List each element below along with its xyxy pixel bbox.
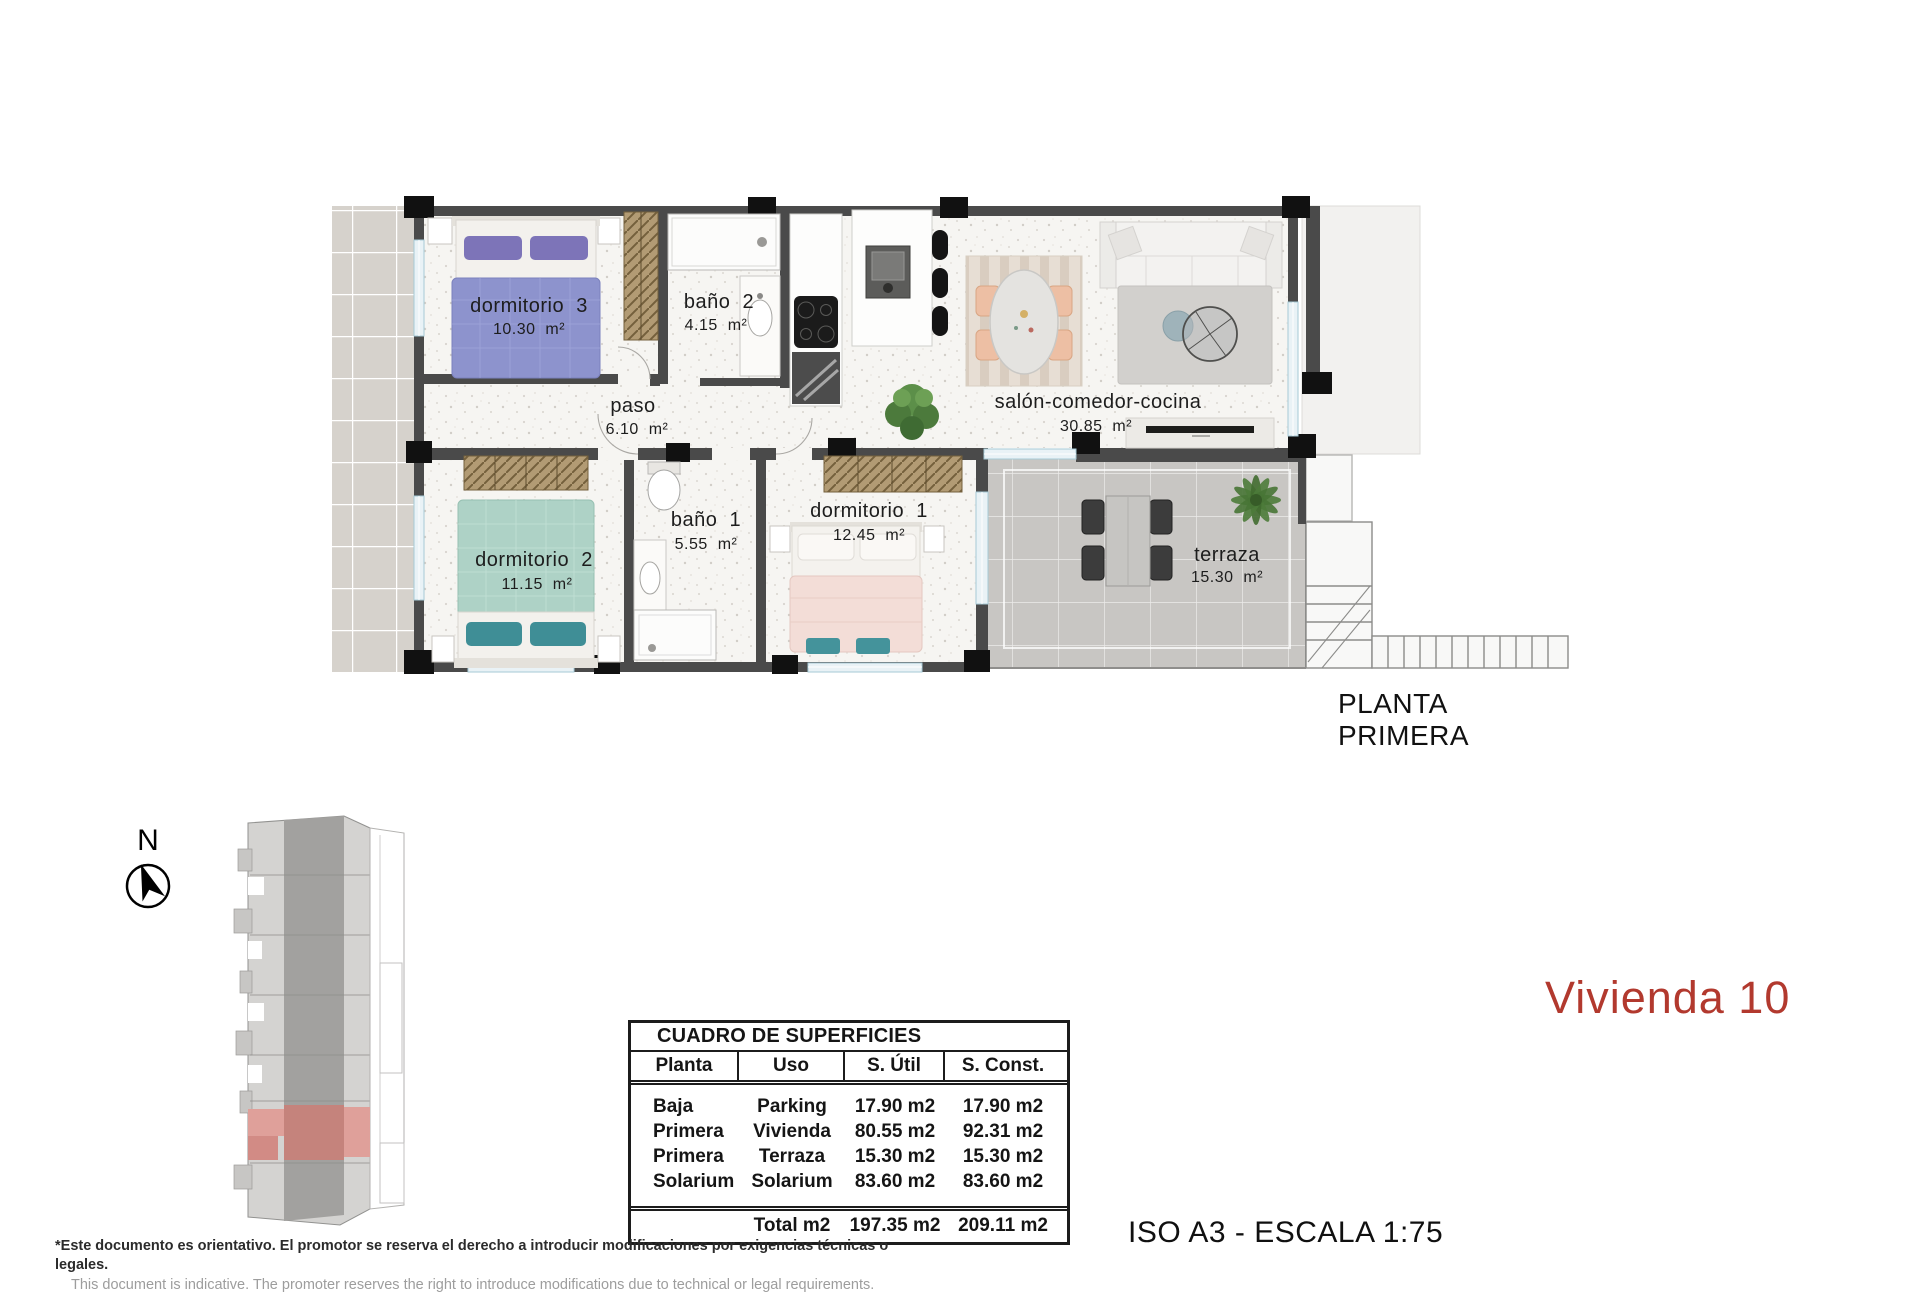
north-arrow: N <box>108 820 198 920</box>
cell: Solarium <box>739 1169 845 1194</box>
room-area-bano-1: 5.55 m² <box>675 536 738 553</box>
room-label-terraza: terraza <box>1194 544 1260 566</box>
room-area-dormitorio-3: 10.30 m² <box>493 321 565 338</box>
disclaimer-en: This document is indicative. The promote… <box>71 1276 915 1295</box>
room-label-salon: salón-comedor-cocina <box>995 391 1202 413</box>
total-label: Total m2 <box>739 1215 845 1237</box>
col-header-uso: Uso <box>739 1052 845 1080</box>
col-header-sutil: S. Útil <box>845 1052 945 1080</box>
neighbour-terrace-tiles <box>332 206 418 672</box>
col-header-sconst: S. Const. <box>945 1052 1061 1080</box>
cell: Primera <box>631 1119 739 1144</box>
room-area-bano-2: 4.15 m² <box>685 317 748 334</box>
cell: 83.60 m2 <box>945 1169 1061 1194</box>
col-header-planta: Planta <box>631 1052 739 1080</box>
living-rug <box>1118 286 1272 384</box>
site-core <box>284 816 344 1221</box>
room-label-dormitorio-2: dormitorio 2 <box>475 549 593 571</box>
page: { "plan": { "floor_label": "PLANTA PRIME… <box>0 0 1920 1280</box>
cell: Terraza <box>739 1144 845 1169</box>
room-label-paso: paso <box>610 395 655 417</box>
floor-plan-svg: dormitorio 3 10.30 m² baño 2 4.15 m² pas… <box>330 190 1570 678</box>
room-area-terraza: 15.30 m² <box>1191 569 1263 586</box>
room-area-dormitorio-2: 11.15 m² <box>502 576 573 593</box>
table-row: Solarium Solarium 83.60 m2 83.60 m2 <box>631 1169 1067 1194</box>
cell: Parking <box>739 1094 845 1119</box>
cell: 15.30 m2 <box>945 1144 1061 1169</box>
surface-table-header: Planta Uso S. Útil S. Const. <box>631 1052 1067 1085</box>
surface-table-title: CUADRO DE SUPERFICIES <box>631 1023 1067 1052</box>
north-label: N <box>137 824 159 857</box>
cell: 17.90 m2 <box>945 1094 1061 1119</box>
scale-note: ISO A3 - ESCALA 1:75 <box>1128 1216 1443 1250</box>
surface-table-body: Baja Parking 17.90 m2 17.90 m2 Primera V… <box>631 1085 1067 1206</box>
room-label-bano-2: baño 2 <box>684 291 754 313</box>
staircase <box>1306 455 1568 668</box>
unit-title: Vivienda 10 <box>1545 972 1790 1024</box>
cell: 17.90 m2 <box>845 1094 945 1119</box>
neighbour-unit-faded <box>1302 206 1420 454</box>
floor-plan: dormitorio 3 10.30 m² baño 2 4.15 m² pas… <box>330 190 1570 678</box>
disclaimer-es: *Este documento es orientativo. El promo… <box>55 1237 915 1275</box>
sliding-door <box>984 449 1076 459</box>
site-unit-highlight <box>248 1105 370 1160</box>
cell: 15.30 m2 <box>845 1144 945 1169</box>
compass-needle <box>131 860 165 903</box>
cell: 80.55 m2 <box>845 1119 945 1144</box>
room-label-dormitorio-1: dormitorio 1 <box>810 500 928 522</box>
cell: 92.31 m2 <box>945 1119 1061 1144</box>
total-util: 197.35 m2 <box>845 1215 945 1237</box>
disclaimer: *Este documento es orientativo. El promo… <box>55 1237 915 1295</box>
room-label-dormitorio-3: dormitorio 3 <box>470 295 588 317</box>
cell: Primera <box>631 1144 739 1169</box>
table-row: Baja Parking 17.90 m2 17.90 m2 <box>631 1094 1067 1119</box>
cell: Solarium <box>631 1169 739 1194</box>
floor-title: PLANTA PRIMERA <box>1338 688 1574 752</box>
room-label-bano-1: baño 1 <box>671 509 741 531</box>
table-row: Primera Terraza 15.30 m2 15.30 m2 <box>631 1144 1067 1169</box>
room-area-dormitorio-1: 12.45 m² <box>833 527 905 544</box>
surface-table: CUADRO DE SUPERFICIES Planta Uso S. Útil… <box>628 1020 1070 1245</box>
dining-set <box>966 256 1082 386</box>
cell: Baja <box>631 1094 739 1119</box>
cell-empty <box>631 1215 739 1237</box>
cell: Vivienda <box>739 1119 845 1144</box>
site-right-outline <box>370 828 404 1209</box>
tv-unit <box>1126 418 1274 448</box>
room-area-paso: 6.10 m² <box>606 421 669 438</box>
room-area-salon: 30.85 m² <box>1060 418 1132 435</box>
total-const: 209.11 m2 <box>945 1215 1061 1237</box>
table-row: Primera Vivienda 80.55 m2 92.31 m2 <box>631 1119 1067 1144</box>
site-plan <box>232 813 432 1233</box>
sofa <box>1100 222 1282 288</box>
cell: 83.60 m2 <box>845 1169 945 1194</box>
